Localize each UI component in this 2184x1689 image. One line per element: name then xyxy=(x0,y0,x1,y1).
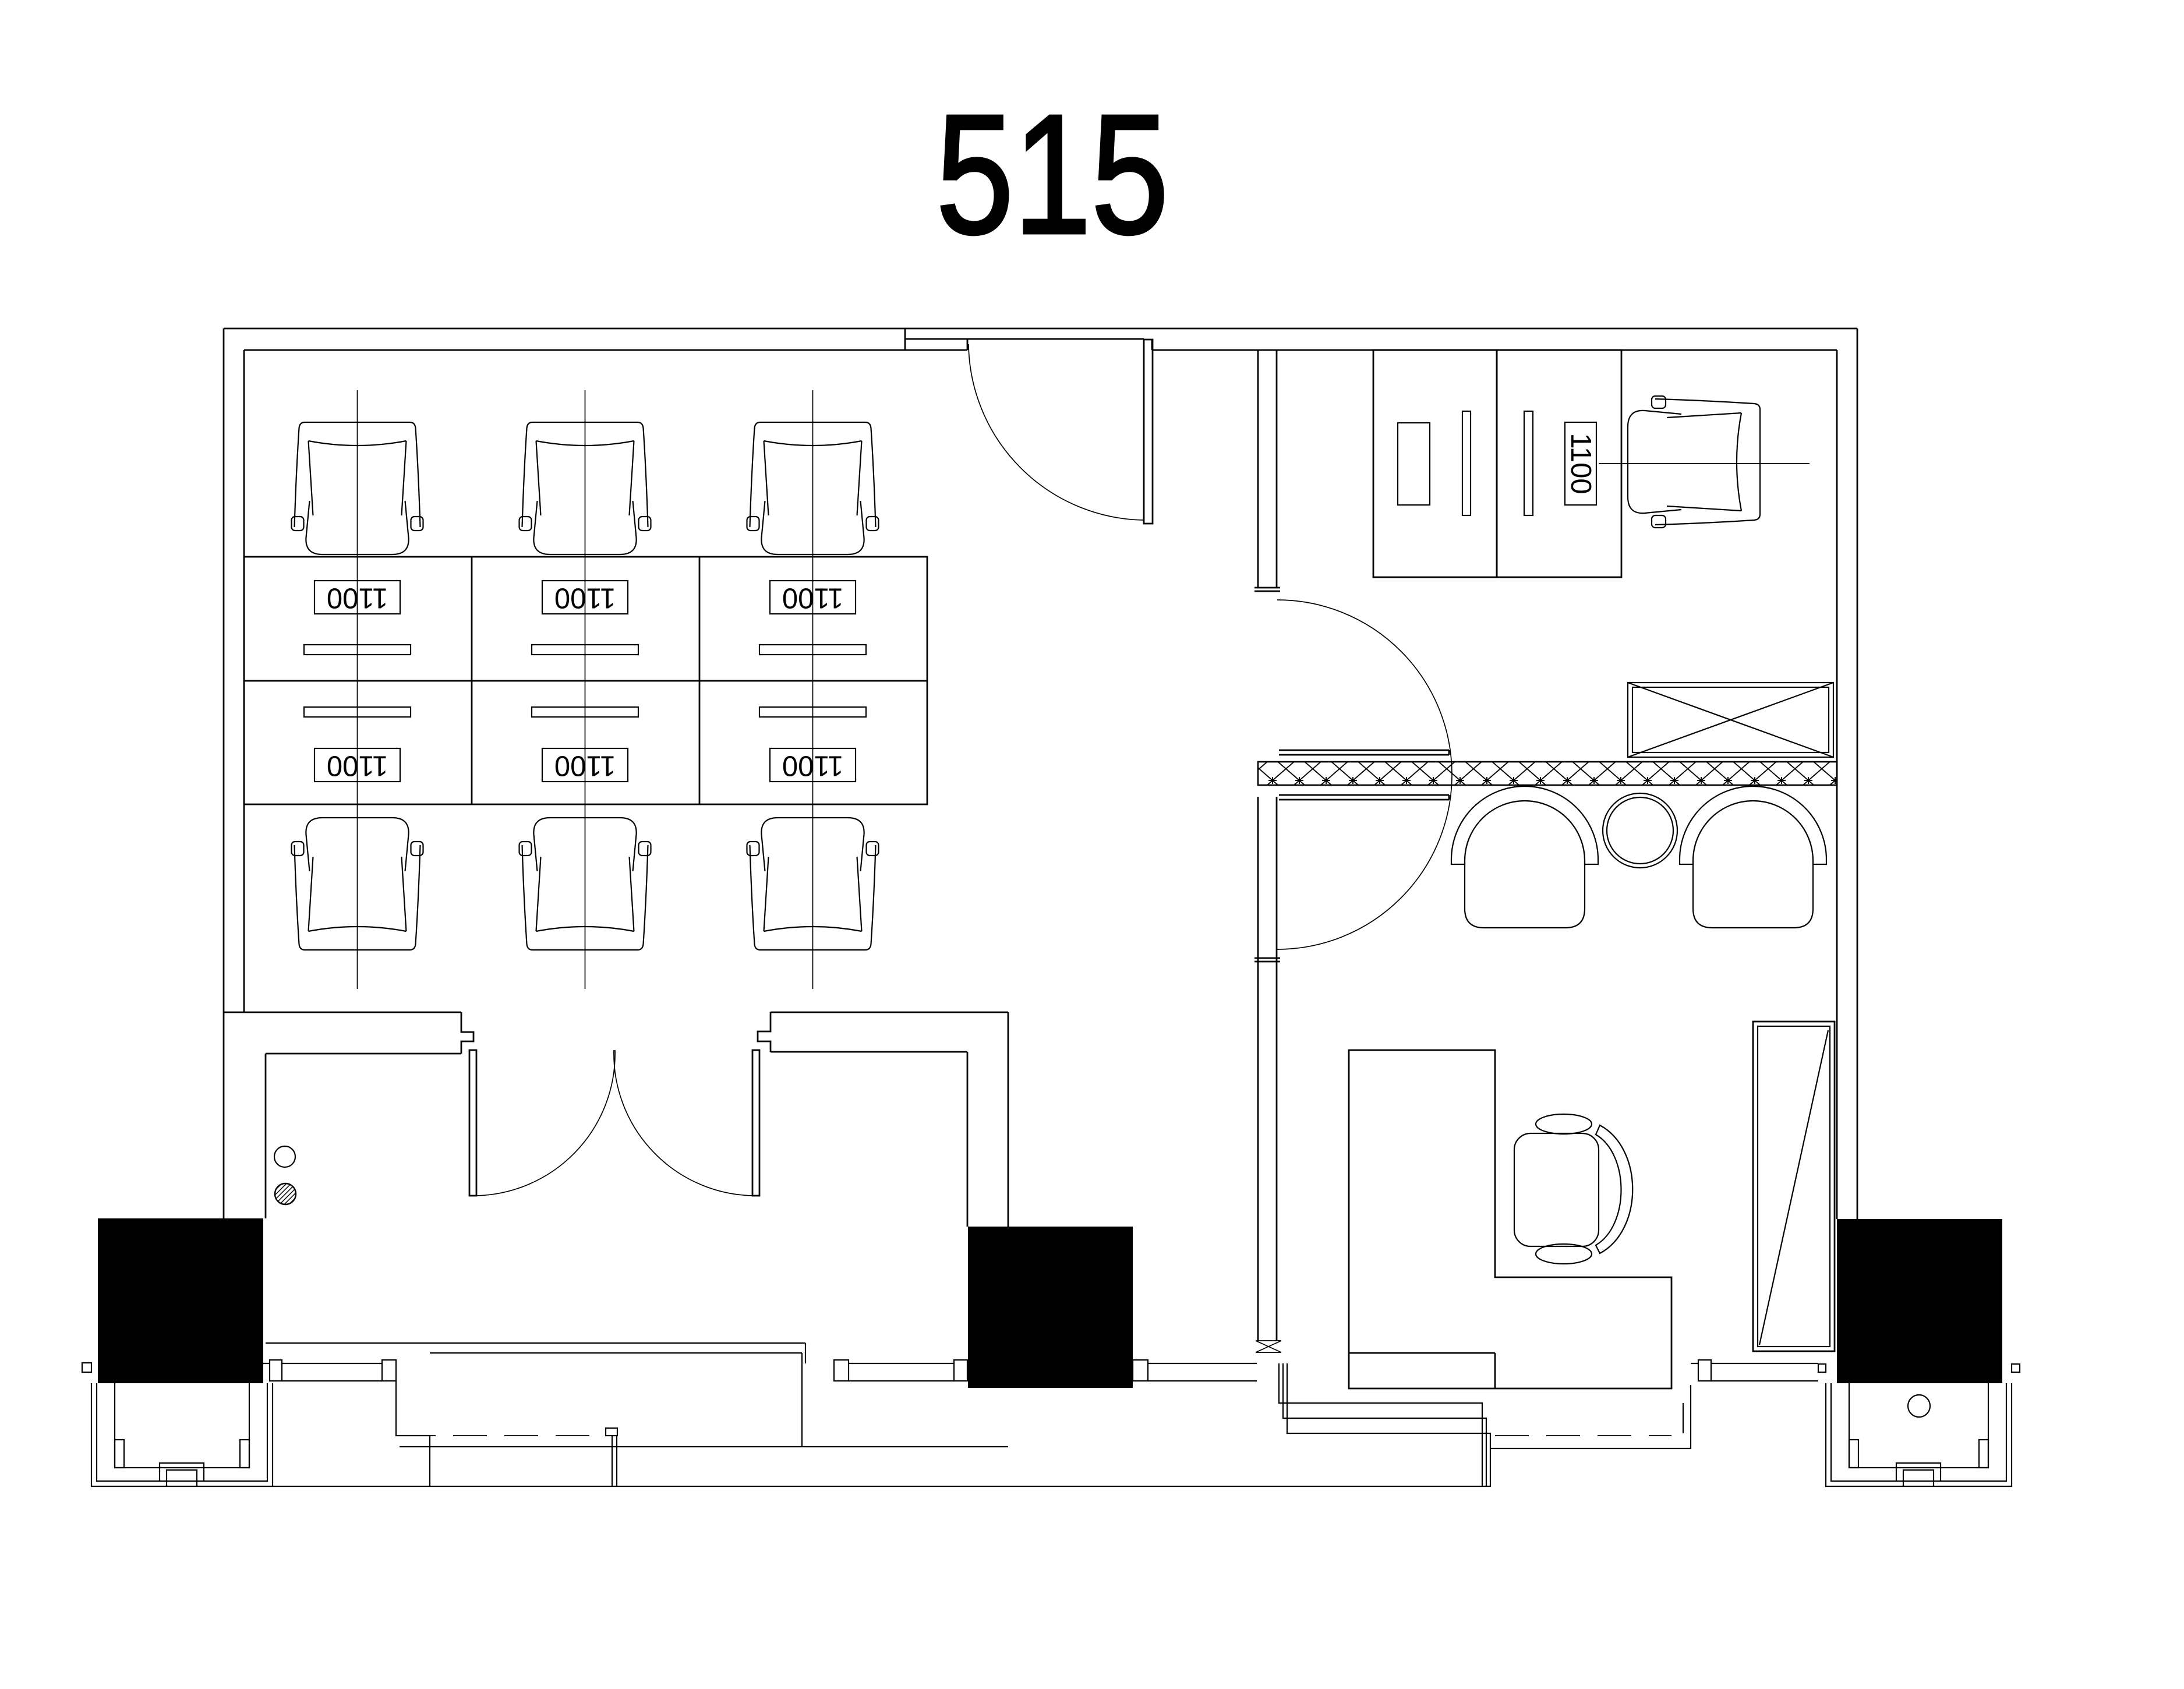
svg-text:1100: 1100 xyxy=(554,750,616,782)
svg-text:1100: 1100 xyxy=(782,750,843,782)
svg-text:1100: 1100 xyxy=(554,582,616,614)
svg-text:1100: 1100 xyxy=(327,582,388,614)
svg-text:1100: 1100 xyxy=(782,582,843,614)
svg-text:1100: 1100 xyxy=(1565,433,1596,494)
svg-text:1100: 1100 xyxy=(327,750,388,782)
svg-text:515: 515 xyxy=(936,79,1168,269)
